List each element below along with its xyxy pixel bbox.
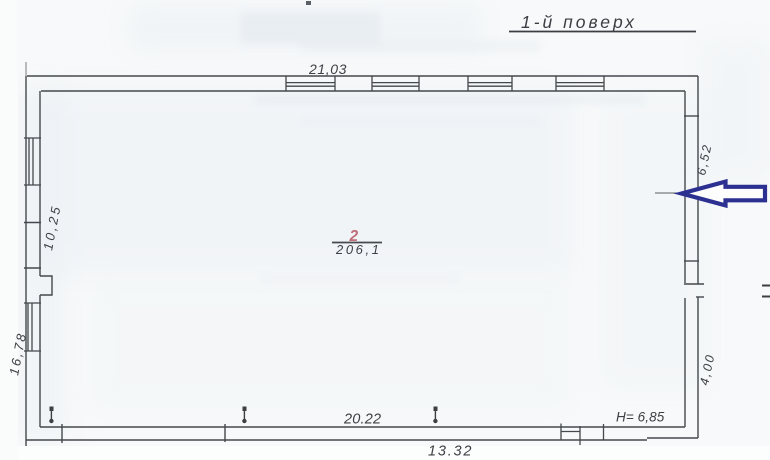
svg-text:20.22: 20.22 <box>343 412 381 428</box>
svg-text:21,03: 21,03 <box>308 61 347 77</box>
svg-text:1-й поверх: 1-й поверх <box>521 12 637 32</box>
svg-text:206,1: 206,1 <box>335 242 382 257</box>
svg-text:H= 6,85: H= 6,85 <box>616 410 665 425</box>
svg-text:13.32: 13.32 <box>428 444 473 460</box>
